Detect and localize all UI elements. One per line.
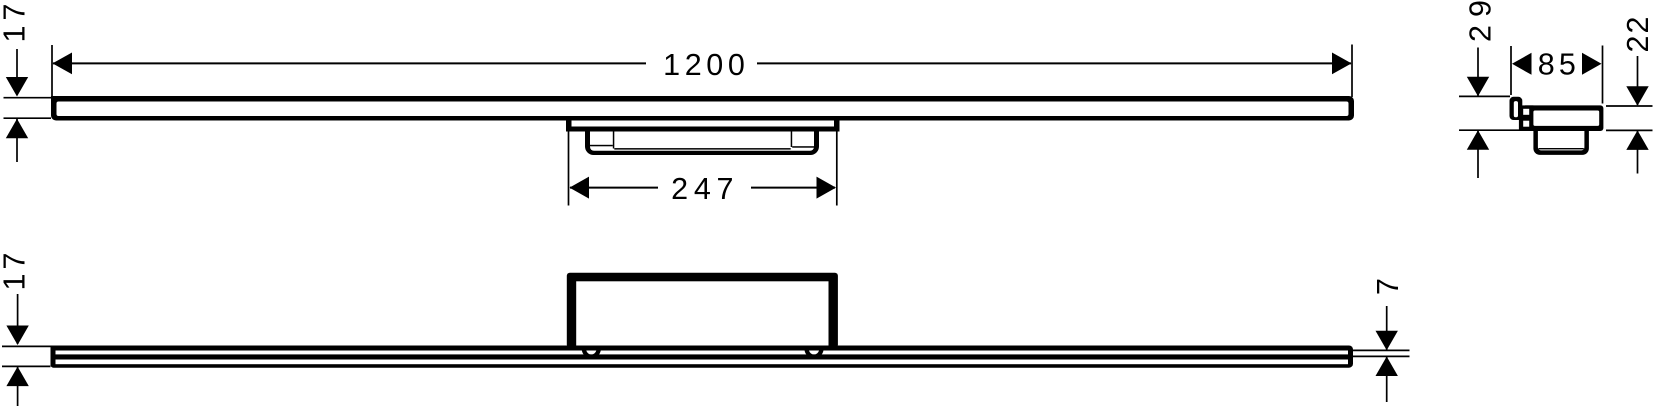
svg-text:29: 29 [1464, 0, 1498, 42]
svg-text:1200: 1200 [663, 48, 749, 82]
svg-text:22: 22 [1621, 15, 1655, 53]
svg-text:247: 247 [671, 172, 739, 206]
svg-text:17: 17 [0, 249, 32, 291]
svg-text:85: 85 [1538, 47, 1580, 81]
svg-text:7: 7 [1371, 278, 1405, 295]
svg-text:17: 17 [0, 0, 32, 42]
